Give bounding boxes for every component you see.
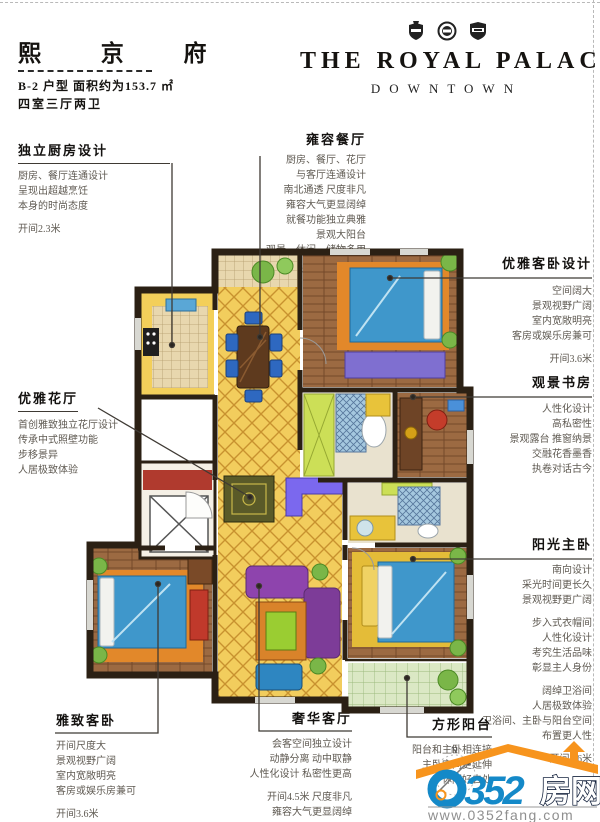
annotation-line: 南向设计	[448, 563, 592, 578]
annotation-line: 景观视野广阔	[462, 299, 592, 314]
plan-study	[400, 398, 464, 470]
annotation-study: 观景书房 人性化设计 高私密性 景观露台 推窗纳景 交融花香墨香 执卷对话古今	[462, 374, 592, 477]
annotation-line: 景观大阳台	[258, 228, 366, 243]
annotation-line: 与客厅连通设计	[258, 168, 366, 183]
brand-tagline: DOWNTOWN	[300, 81, 593, 97]
annotation-line: 休闲好去处	[393, 773, 492, 788]
annotation-line: 动静分离 动中取静	[210, 752, 352, 767]
annotation-metric: 开间2.3米	[18, 222, 170, 237]
annotation-metric: 开间4.5米 尺度非凡	[210, 790, 352, 805]
annotation-flower-hall: 优雅花厅 首创雅致独立花厅设计 传承中式照壁功能 步移景异 人居极致体验	[18, 390, 150, 478]
annotation-line: 阔绰卫浴间	[448, 684, 592, 699]
annotation-title: 独立厨房设计	[18, 142, 170, 164]
annotation-line: 景观露台 推窗纳景	[462, 432, 592, 447]
annotation-line: 呈现出超越烹饪	[18, 184, 170, 199]
plan-floors	[93, 255, 468, 707]
annotation-line: 步入式衣帽间	[448, 616, 592, 631]
plan-elevator-core	[140, 462, 215, 558]
annotation-line: 传承中式照壁功能	[18, 433, 150, 448]
annotation-line: 高私密性	[462, 417, 592, 432]
annotation-metric: 开间3.6米	[462, 352, 592, 367]
annotation-line: 采光时间更长久	[448, 578, 592, 593]
annotation-line: 空间阔大	[462, 284, 592, 299]
annotation-line: 人居极致体验	[18, 463, 150, 478]
annotation-line: 主卧空间更延伸	[393, 758, 492, 773]
plan-living-room	[224, 476, 344, 690]
shield-badge-icon	[470, 22, 486, 40]
annotation-line: 彰显主人身份	[448, 661, 592, 676]
plan-windows	[87, 249, 473, 713]
plan-door-arcs	[186, 338, 374, 570]
plan-walls	[90, 252, 470, 710]
medal-circle-icon	[438, 23, 455, 40]
annotation-line: 会客空间独立设计	[210, 737, 352, 752]
annotation-line: 开间尺度大	[56, 739, 176, 754]
plan-bathroom-top	[304, 394, 390, 476]
logo-cn-name: 房网	[540, 774, 600, 809]
annotation-guest-bedroom-top: 优雅客卧设计 空间阔大 景观视野广阔 室内宽敞明亮 客房或娱乐房兼可 开间3.6…	[462, 255, 592, 367]
annotation-line: 室内宽敞明亮	[56, 769, 176, 784]
annotation-title: 奢华客厅	[210, 710, 352, 728]
annotation-title: 优雅客卧设计	[462, 255, 592, 273]
annotation-line: 阳台和主卧相连接	[393, 743, 492, 758]
title-divider	[18, 70, 152, 72]
annotation-line: 步移景异	[18, 448, 150, 463]
unit-area-label: B-2 户型 面积约为153.7 ㎡	[18, 77, 174, 94]
annotation-line: 人居极致体验	[448, 699, 592, 714]
room-count-label: 四室三厅两卫	[18, 95, 102, 112]
annotation-line: 首创雅致独立花厅设计	[18, 418, 150, 433]
annotation-title: 方形阳台	[393, 716, 492, 734]
top-dashed-border	[0, 2, 600, 3]
annotation-line: 室内宽敞明亮	[462, 314, 592, 329]
annotation-line: 景观视野更广阔	[448, 593, 592, 608]
annotation-living-room: 奢华客厅 会客空间独立设计 动静分离 动中取静 人性化设计 私密性更高 开间4.…	[210, 710, 352, 820]
project-title: 熙 京 府	[18, 34, 234, 68]
annotation-line: 客房或娱乐房兼可	[462, 329, 592, 344]
annotation-line: 人性化设计	[448, 631, 592, 646]
annotation-dining: 雍容餐厅 厨房、餐厅、花厅 与客厅连通设计 南北通透 尺度非凡 雍容大气更显阔绰…	[258, 131, 366, 281]
annotation-line: 观景、休闲、储物多用	[258, 243, 366, 258]
annotation-line: 就餐功能独立典雅	[258, 213, 366, 228]
annotation-line: 南北通透 尺度非凡	[258, 183, 366, 198]
annotation-line: 人性化设计	[462, 402, 592, 417]
annotation-title: 雅致客卧	[56, 712, 176, 730]
annotation-line: 雍容大气更显阔绰	[258, 198, 366, 213]
annotation-metric: 开间3.6米	[56, 807, 176, 822]
logo-url: www.0352fang.com	[427, 807, 574, 822]
annotation-title: 阳光主卧	[448, 536, 592, 554]
annotation-kitchen: 独立厨房设计 厨房、餐厅连通设计 呈现出超越烹饪 本身的时尚态度 开间2.3米	[18, 142, 170, 237]
annotation-line: 厨房、餐厅连通设计	[18, 169, 170, 184]
annotation-title: 优雅花厅	[18, 390, 78, 412]
right-dashed-border	[593, 0, 594, 806]
annotation-title: 观景书房	[462, 374, 592, 392]
shield-crest-icon	[409, 21, 423, 40]
annotation-line: 景观视野广阔	[56, 754, 176, 769]
annotation-square-balcony: 方形阳台 阳台和主卧相连接 主卧空间更延伸 休闲好去处	[393, 716, 492, 788]
flyer-page: 熙 京 府 B-2 户型 面积约为153.7 ㎡ 四室三厅两卫	[0, 0, 600, 822]
annotation-line: 本身的时尚态度	[18, 199, 170, 214]
plan-kitchen	[143, 299, 196, 356]
annotation-metric: 开间3米 进深4米	[258, 266, 366, 281]
annotation-guest-bedroom-bottom: 雅致客卧 开间尺度大 景观视野广阔 室内宽敞明亮 客房或娱乐房兼可 开间3.6米	[56, 712, 176, 822]
logo-swirl	[437, 791, 446, 800]
annotation-title: 雍容餐厅	[258, 131, 366, 149]
annotation-line: 客房或娱乐房兼可	[56, 784, 176, 799]
plan-guest-bedroom-bottom	[91, 548, 212, 663]
annotation-line: 人性化设计 私密性更高	[210, 767, 352, 782]
annotation-metric: 雍容大气更显阔绰	[210, 805, 352, 820]
plan-master-bath	[350, 483, 440, 540]
brand-name: THE ROYAL PALACE	[300, 48, 593, 75]
brand-emblems	[300, 20, 593, 42]
annotation-line: 交融花香墨香	[462, 447, 592, 462]
annotation-line: 执卷对话古今	[462, 462, 592, 477]
brand-block: THE ROYAL PALACE DOWNTOWN	[300, 20, 593, 97]
annotation-line: 考究生活品味	[448, 646, 592, 661]
annotation-line: 厨房、餐厅、花厅	[258, 153, 366, 168]
